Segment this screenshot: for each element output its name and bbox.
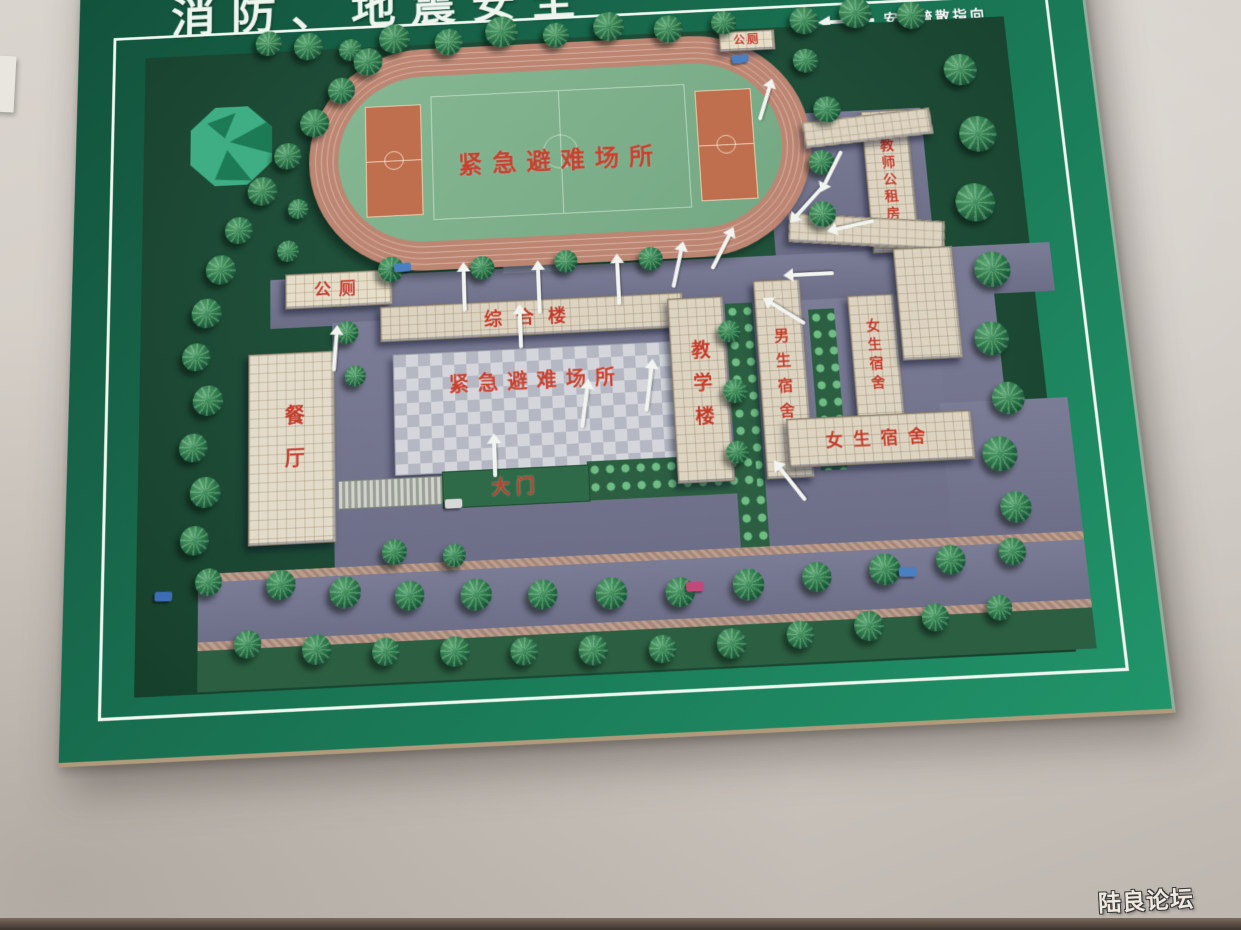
girls-dorm-side-label: 女生宿舍: [864, 318, 887, 395]
running-track: 紧急避难场所: [308, 31, 820, 277]
tree: [554, 249, 578, 272]
tree: [957, 115, 998, 152]
tree: [485, 16, 519, 48]
tree: [789, 6, 820, 34]
tree: [277, 240, 299, 262]
tree: [248, 177, 277, 207]
tree: [225, 217, 253, 245]
tree: [192, 298, 222, 329]
boys-dorm-label: 男生宿舍: [771, 327, 796, 428]
car: [445, 499, 463, 509]
tree: [792, 48, 819, 73]
toilet-top-label: 公厕: [733, 34, 761, 48]
main-gate-label: 大门: [491, 475, 541, 499]
toilet-left-label: 公厕: [314, 279, 364, 300]
car: [686, 581, 704, 591]
wall-sign-edge: [0, 55, 16, 112]
tree: [379, 24, 410, 54]
car: [899, 567, 917, 577]
car: [394, 262, 411, 272]
dining-hall-label: 餐厅: [280, 404, 304, 491]
tree: [954, 182, 997, 222]
tree: [838, 0, 873, 29]
watermark: 陆良论坛: [1097, 880, 1195, 919]
basketball-court-left: [365, 104, 424, 217]
building-right-lower: [893, 246, 964, 361]
building-toilet-left: 公厕: [285, 269, 393, 309]
tree: [434, 28, 463, 56]
sports-field: 紧急避难场所: [338, 59, 789, 245]
tree: [542, 22, 569, 48]
building-dining-hall: 餐厅: [248, 351, 337, 547]
car: [154, 592, 172, 602]
tree: [179, 433, 208, 463]
evacuation-map-board: 消防、地震安全 安全疏散指向: [59, 0, 1176, 767]
tree: [274, 143, 301, 171]
tree: [344, 364, 365, 386]
tree: [896, 1, 927, 29]
tree: [180, 525, 209, 556]
comprehensive-label: 综合楼: [484, 305, 581, 330]
tree: [294, 32, 323, 61]
teaching-label: 教学楼: [687, 339, 715, 440]
emergency-shelter-plaza: 紧急避难场所: [393, 341, 685, 476]
floor-strip: [0, 918, 1241, 930]
teachers-housing-label: 教师公租房: [878, 138, 902, 224]
tree: [942, 53, 978, 86]
tree: [182, 343, 210, 372]
plaza-shelter-label: 紧急避难场所: [394, 358, 679, 401]
tree: [206, 255, 236, 285]
tree: [193, 385, 223, 417]
school-emblem: [190, 105, 272, 187]
building-girls-dorm-bottom: 女生宿舍: [786, 410, 976, 468]
basketball-court-right: [694, 88, 758, 201]
girls-dorm-bottom-label: 女生宿舍: [825, 426, 937, 451]
gate-fence: [338, 476, 443, 510]
tree: [593, 11, 625, 41]
tree: [255, 30, 281, 56]
tree: [287, 198, 308, 219]
campus-map: 紧急避难场所 公厕 公厕 综合楼 教学楼 男生宿舍 女生宿舍 女生宿舍 教师公租…: [134, 16, 1076, 697]
tree: [190, 476, 221, 508]
main-gate: 大门: [442, 464, 591, 508]
